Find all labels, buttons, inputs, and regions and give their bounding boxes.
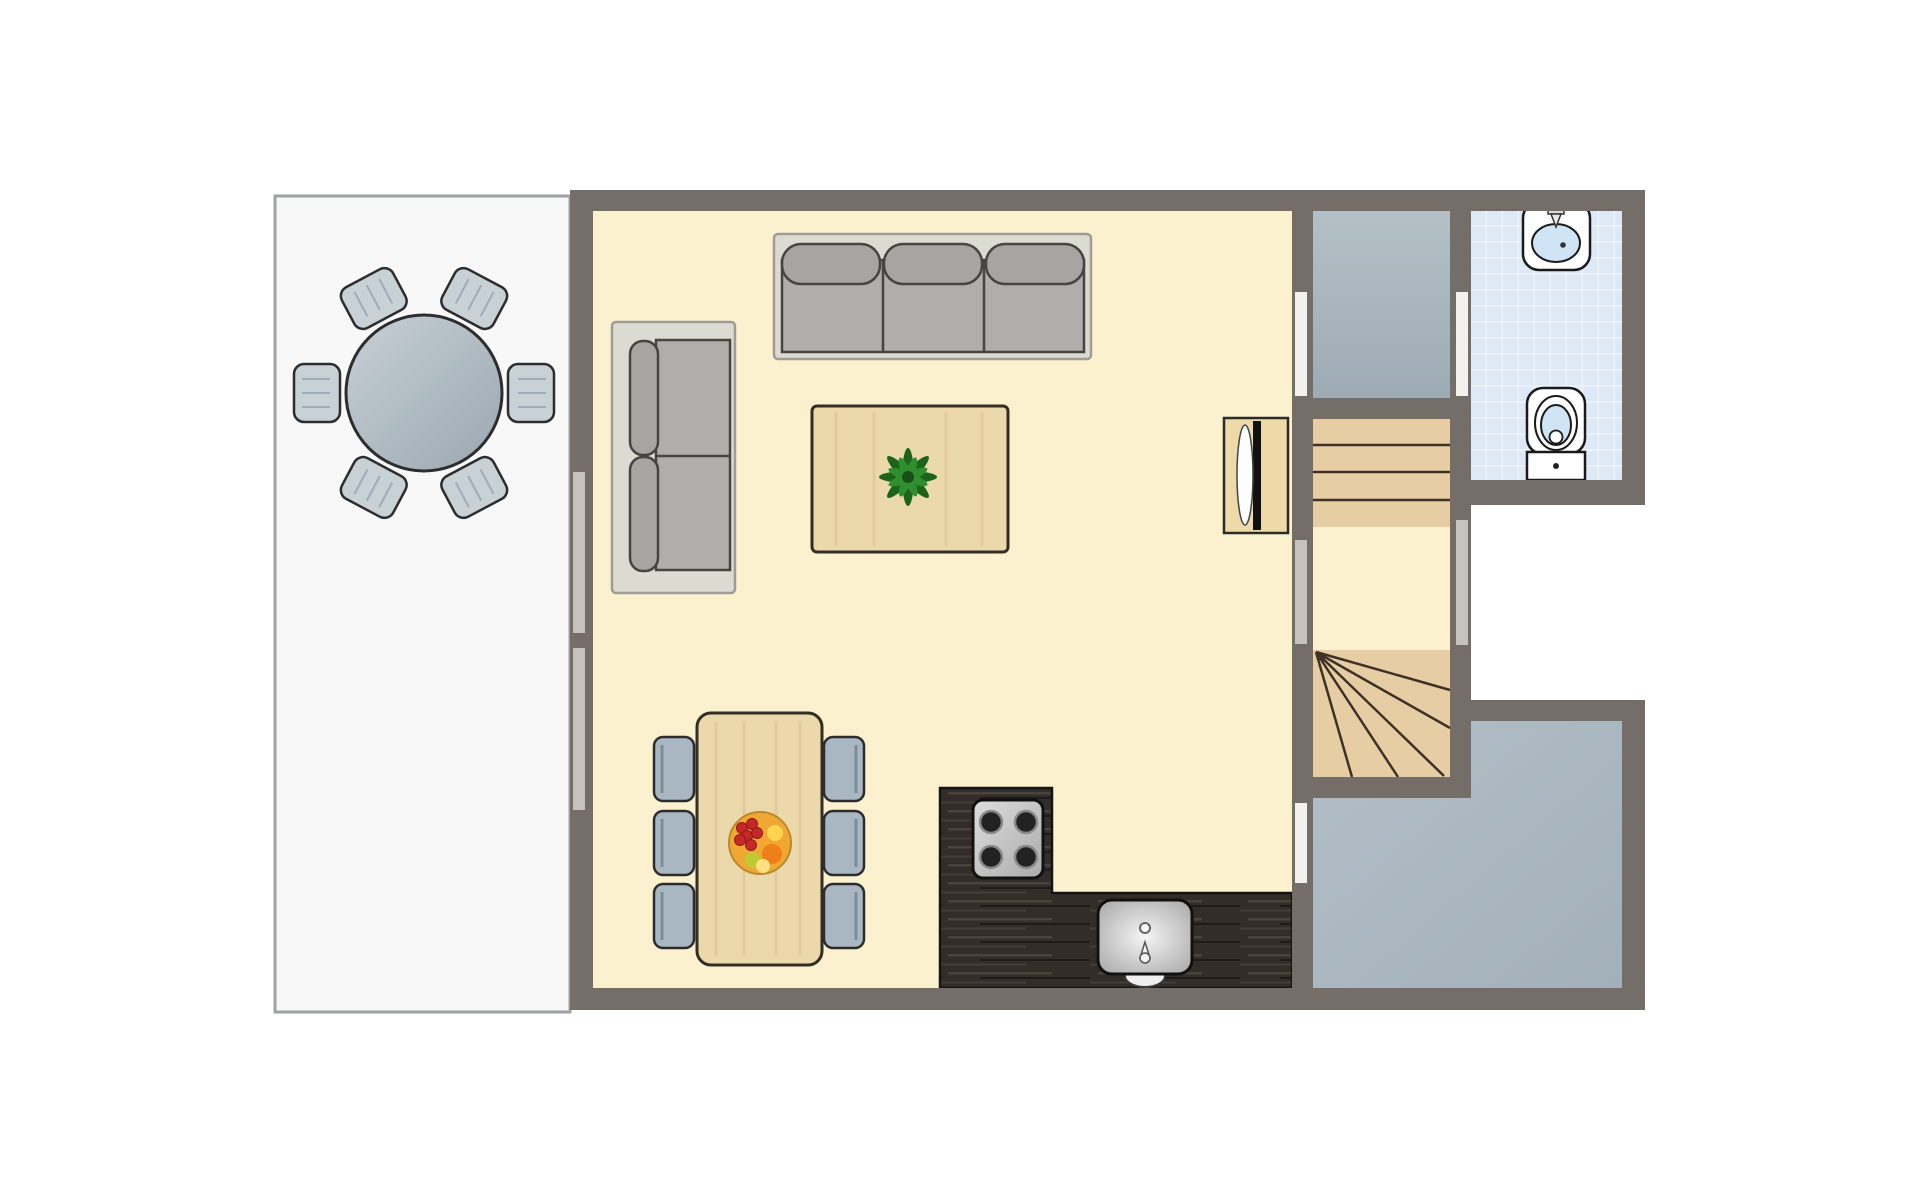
dining-chair — [654, 737, 694, 801]
wall-winder-south — [1313, 777, 1450, 798]
wash-basin — [1523, 202, 1590, 270]
burner — [1015, 846, 1037, 868]
terrace — [275, 196, 570, 1012]
sofa-3seat — [774, 234, 1091, 359]
sink-drain — [1140, 923, 1150, 933]
window-landing-east — [1456, 520, 1468, 645]
dining-chair — [824, 884, 864, 948]
sideboard-door — [1237, 425, 1253, 525]
stove — [973, 800, 1043, 878]
wall-east-lower — [1622, 700, 1645, 1010]
sofa-3seat-back-cushion — [986, 244, 1084, 284]
wall-vestibule-south — [1313, 398, 1450, 419]
sofa-2seat — [612, 322, 735, 593]
wall-north — [570, 190, 1645, 211]
window-left-1 — [573, 472, 585, 633]
fruit-bowl — [729, 812, 791, 874]
sofa-3seat-back-cushion — [884, 244, 982, 284]
burner — [980, 811, 1002, 833]
staircase — [1313, 419, 1450, 777]
burner — [980, 846, 1002, 868]
toilet — [1527, 388, 1585, 480]
kitchen-sink — [1098, 900, 1192, 987]
dining-chair — [654, 884, 694, 948]
wall-east-upper — [1622, 190, 1645, 505]
toilet-flush — [1550, 431, 1563, 444]
wall-bathroom-south — [1450, 480, 1645, 505]
window-left-2 — [573, 648, 585, 810]
vestibule-floor — [1313, 211, 1450, 398]
sofa-3seat-back-cushion — [782, 244, 880, 284]
dining-chair — [654, 811, 694, 875]
potted-plant — [879, 448, 937, 506]
wall-notch-south — [1450, 700, 1645, 721]
sideboard-divider — [1253, 421, 1261, 530]
patio-table — [346, 315, 502, 471]
coffee-table — [812, 406, 1008, 552]
door-kitchen-utility — [1295, 803, 1307, 883]
burner — [1015, 811, 1037, 833]
dining-set — [654, 713, 864, 965]
sofa-2seat-back-cushion — [630, 341, 658, 455]
wall-south — [570, 988, 1645, 1010]
sofa-2seat-back-cushion — [630, 457, 658, 571]
dining-chair — [824, 737, 864, 801]
sideboard — [1224, 418, 1288, 533]
door-vestibule-bathroom — [1456, 292, 1468, 396]
dining-chair — [824, 811, 864, 875]
window-landing-west — [1295, 540, 1307, 644]
stair-landing — [1313, 527, 1450, 650]
door-living-vestibule — [1295, 292, 1307, 396]
floor-plan — [0, 0, 1920, 1200]
